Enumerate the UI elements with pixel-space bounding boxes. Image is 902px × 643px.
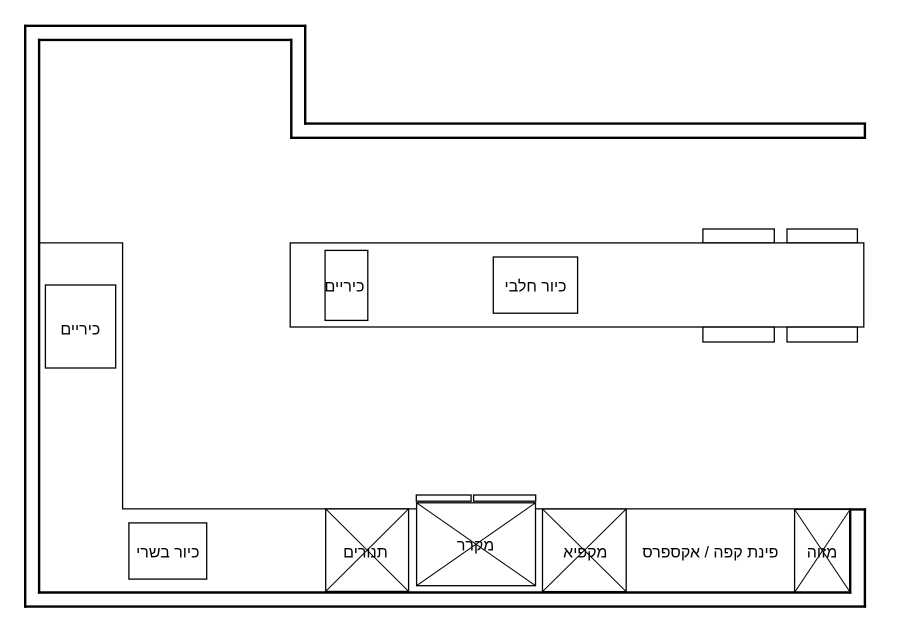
svg-text:כיריים: כיריים (60, 321, 100, 338)
svg-text:פינת קפה / אקספרס: פינת קפה / אקספרס (642, 545, 778, 562)
svg-text:כיור חלבי: כיור חלבי (504, 278, 566, 296)
svg-text:תנורים: תנורים (343, 545, 388, 562)
svg-text:מקרר: מקרר (457, 537, 494, 554)
svg-text:מקפיא: מקפיא (563, 545, 607, 562)
svg-text:כיריים: כיריים (325, 279, 365, 296)
svg-text:כיור בשרי: כיור בשרי (136, 545, 199, 562)
svg-text:מזוה: מזוה (807, 545, 837, 562)
